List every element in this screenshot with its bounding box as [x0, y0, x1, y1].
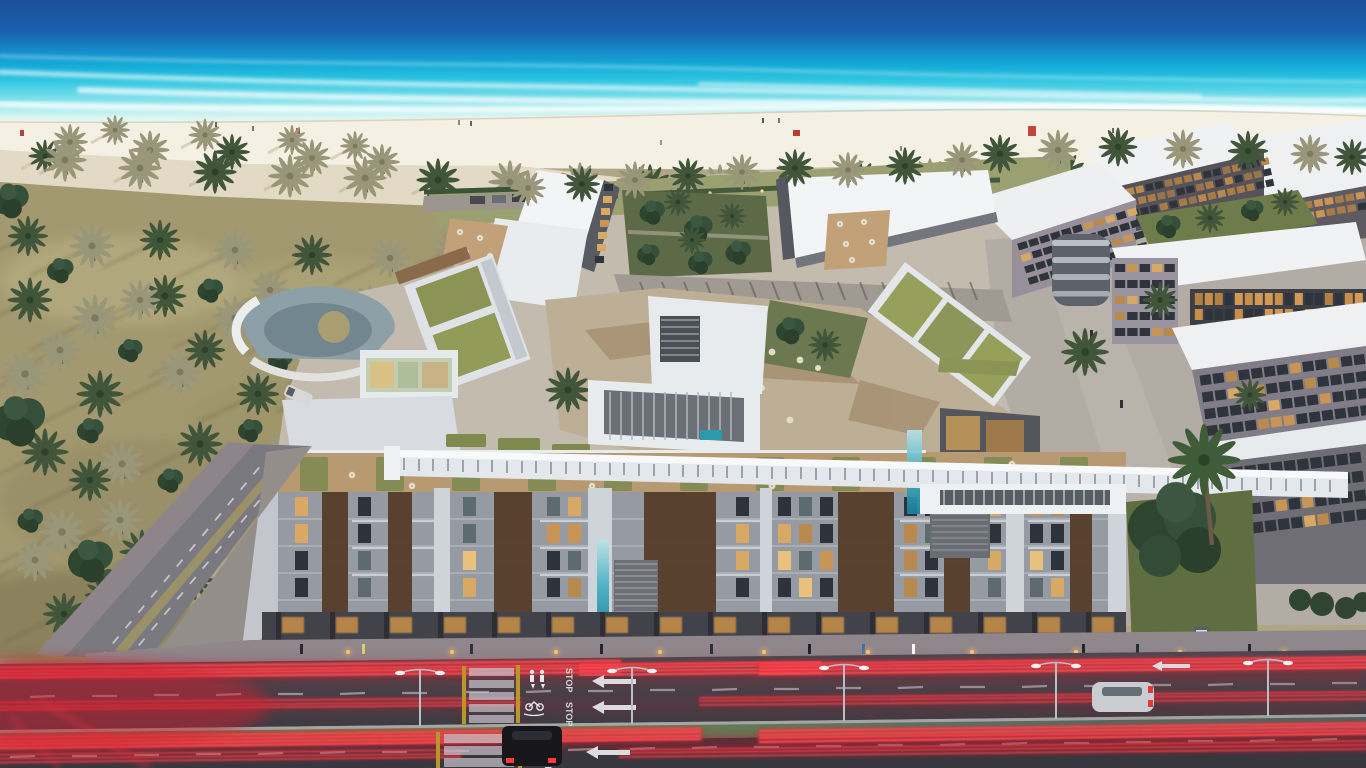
- svg-text:STOP: STOP: [564, 668, 574, 692]
- svg-text:STOP: STOP: [564, 702, 574, 726]
